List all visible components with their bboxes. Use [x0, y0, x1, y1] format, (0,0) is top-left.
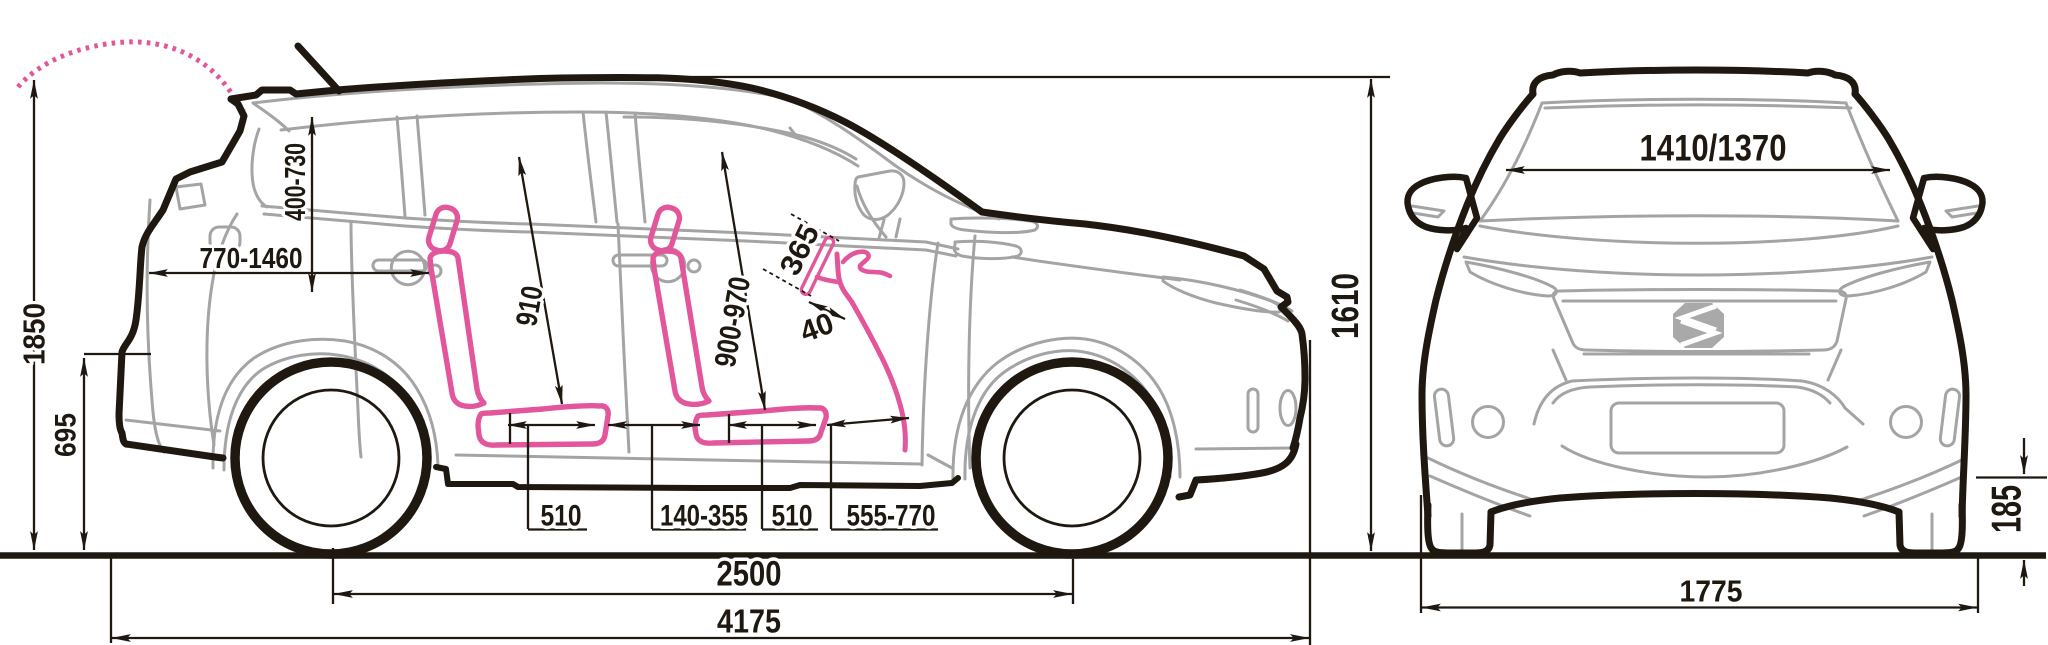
- svg-text:400-730: 400-730: [280, 143, 312, 221]
- svg-text:770-1460: 770-1460: [200, 243, 303, 275]
- svg-text:185: 185: [1983, 485, 2030, 533]
- svg-text:2500: 2500: [717, 555, 782, 594]
- svg-text:1775: 1775: [1680, 574, 1743, 609]
- svg-text:4175: 4175: [717, 603, 781, 640]
- svg-text:555-770: 555-770: [847, 500, 936, 533]
- svg-text:1610: 1610: [1325, 273, 1367, 339]
- svg-text:140-355: 140-355: [660, 500, 748, 533]
- svg-text:1410/1370: 1410/1370: [1640, 128, 1787, 169]
- svg-text:510: 510: [541, 500, 582, 533]
- svg-text:910: 910: [510, 283, 549, 328]
- svg-text:695: 695: [50, 413, 83, 457]
- svg-text:1850: 1850: [17, 303, 52, 365]
- svg-text:510: 510: [772, 500, 813, 533]
